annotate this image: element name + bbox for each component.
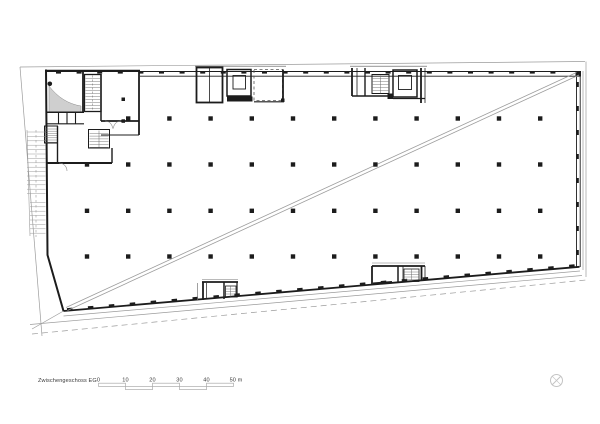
column-dot — [250, 209, 254, 213]
door-arc-1 — [105, 121, 113, 129]
scale-tick-20: 20 — [149, 378, 155, 384]
column-dot — [208, 209, 212, 213]
column-dot — [85, 209, 89, 213]
column-dot — [497, 162, 501, 166]
scale-tick-40: 40 — [203, 378, 209, 384]
column-dot — [414, 254, 418, 258]
scale-bar: Zwischengeschoss EG 0 10 20 30 40 50 m — [38, 378, 243, 390]
column-dot — [373, 209, 377, 213]
building-shell — [46, 70, 581, 312]
column-dot — [291, 209, 295, 213]
column-dot — [497, 209, 501, 213]
core-b-landing-solid — [388, 94, 394, 100]
column-dot — [126, 209, 130, 213]
curb-wedge-line — [32, 311, 64, 329]
column-dot — [250, 116, 254, 120]
column-dot — [250, 254, 254, 258]
column-dot — [373, 116, 377, 120]
floor-plan-canvas: Zwischengeschoss EG 0 10 20 30 40 50 m — [0, 0, 600, 424]
column-dot — [208, 116, 212, 120]
column-dot — [85, 254, 89, 258]
column-dot — [373, 162, 377, 166]
core-b-stair-hatch — [373, 75, 388, 93]
core-d-lift-hatch — [405, 270, 419, 282]
column-dot — [291, 162, 295, 166]
column-dot — [332, 116, 336, 120]
diagonal-line-1 — [66, 73, 577, 308]
column-dot — [373, 254, 377, 258]
scale-tick-10: 10 — [122, 378, 128, 384]
core-b-elevator — [393, 70, 417, 97]
column-dot — [167, 209, 171, 213]
core-a-node — [281, 99, 285, 103]
core-a-elevator — [227, 70, 251, 97]
column-dot — [538, 254, 542, 258]
column-dot — [456, 209, 460, 213]
column-dot — [167, 254, 171, 258]
site-line-left — [20, 67, 42, 336]
sidewalk-line-2 — [30, 276, 582, 325]
scale-tick-0: 0 — [97, 378, 100, 384]
column-grid — [85, 116, 543, 258]
column-dot — [332, 209, 336, 213]
sidewalk-line-1 — [64, 271, 581, 316]
core-a-elevator-cab — [233, 76, 246, 90]
column-dot — [208, 254, 212, 258]
scale-tick-30: 30 — [176, 378, 182, 384]
wall-node-2 — [122, 119, 126, 123]
column-dot — [538, 162, 542, 166]
column-dot — [538, 209, 542, 213]
column-dot — [414, 162, 418, 166]
column-dot — [332, 254, 336, 258]
core-a-void-dashed — [254, 70, 283, 101]
service-cell-hatch — [90, 131, 109, 148]
door-arc-3 — [59, 163, 67, 171]
column-dot — [456, 254, 460, 258]
entrance-column — [48, 82, 53, 87]
wall-node-1 — [122, 98, 126, 102]
column-dot — [456, 116, 460, 120]
floor-plan-drawing: Zwischengeschoss EG 0 10 20 30 40 50 m — [0, 0, 600, 424]
column-dot — [414, 209, 418, 213]
stair-shaft-hatch — [86, 76, 101, 111]
column-dot — [497, 254, 501, 258]
column-dot — [497, 116, 501, 120]
column-dot — [208, 162, 212, 166]
column-dot — [126, 162, 130, 166]
ramp-fill — [49, 86, 81, 112]
column-dot — [538, 116, 542, 120]
core-c-lift-hatch — [226, 287, 236, 297]
stair-core-d — [372, 263, 425, 285]
site-line-top — [20, 62, 585, 68]
core-a-landing-solid — [227, 97, 253, 102]
core-b-elevator-cab — [399, 76, 412, 90]
column-dot — [332, 162, 336, 166]
column-dot — [414, 116, 418, 120]
stair-pocket-hatch — [45, 129, 57, 142]
column-dot — [126, 116, 130, 120]
core-d-base-solid — [373, 282, 392, 284]
plan-title: Zwischengeschoss EG — [38, 378, 97, 384]
entrance-block — [45, 71, 141, 171]
column-dot — [250, 162, 254, 166]
column-dot — [456, 162, 460, 166]
small-cells — [46, 113, 84, 124]
door-arc-2 — [114, 121, 122, 129]
column-dot — [291, 254, 295, 258]
diagonal-line-2 — [68, 75, 580, 311]
column-dot — [291, 116, 295, 120]
column-dot — [167, 116, 171, 120]
column-dot — [126, 254, 130, 258]
north-arrow-icon — [551, 375, 563, 387]
scale-bar-segments — [99, 383, 234, 389]
scale-tick-50: 50 m — [230, 378, 243, 384]
diagonal-lines — [66, 73, 579, 311]
column-dot — [167, 162, 171, 166]
